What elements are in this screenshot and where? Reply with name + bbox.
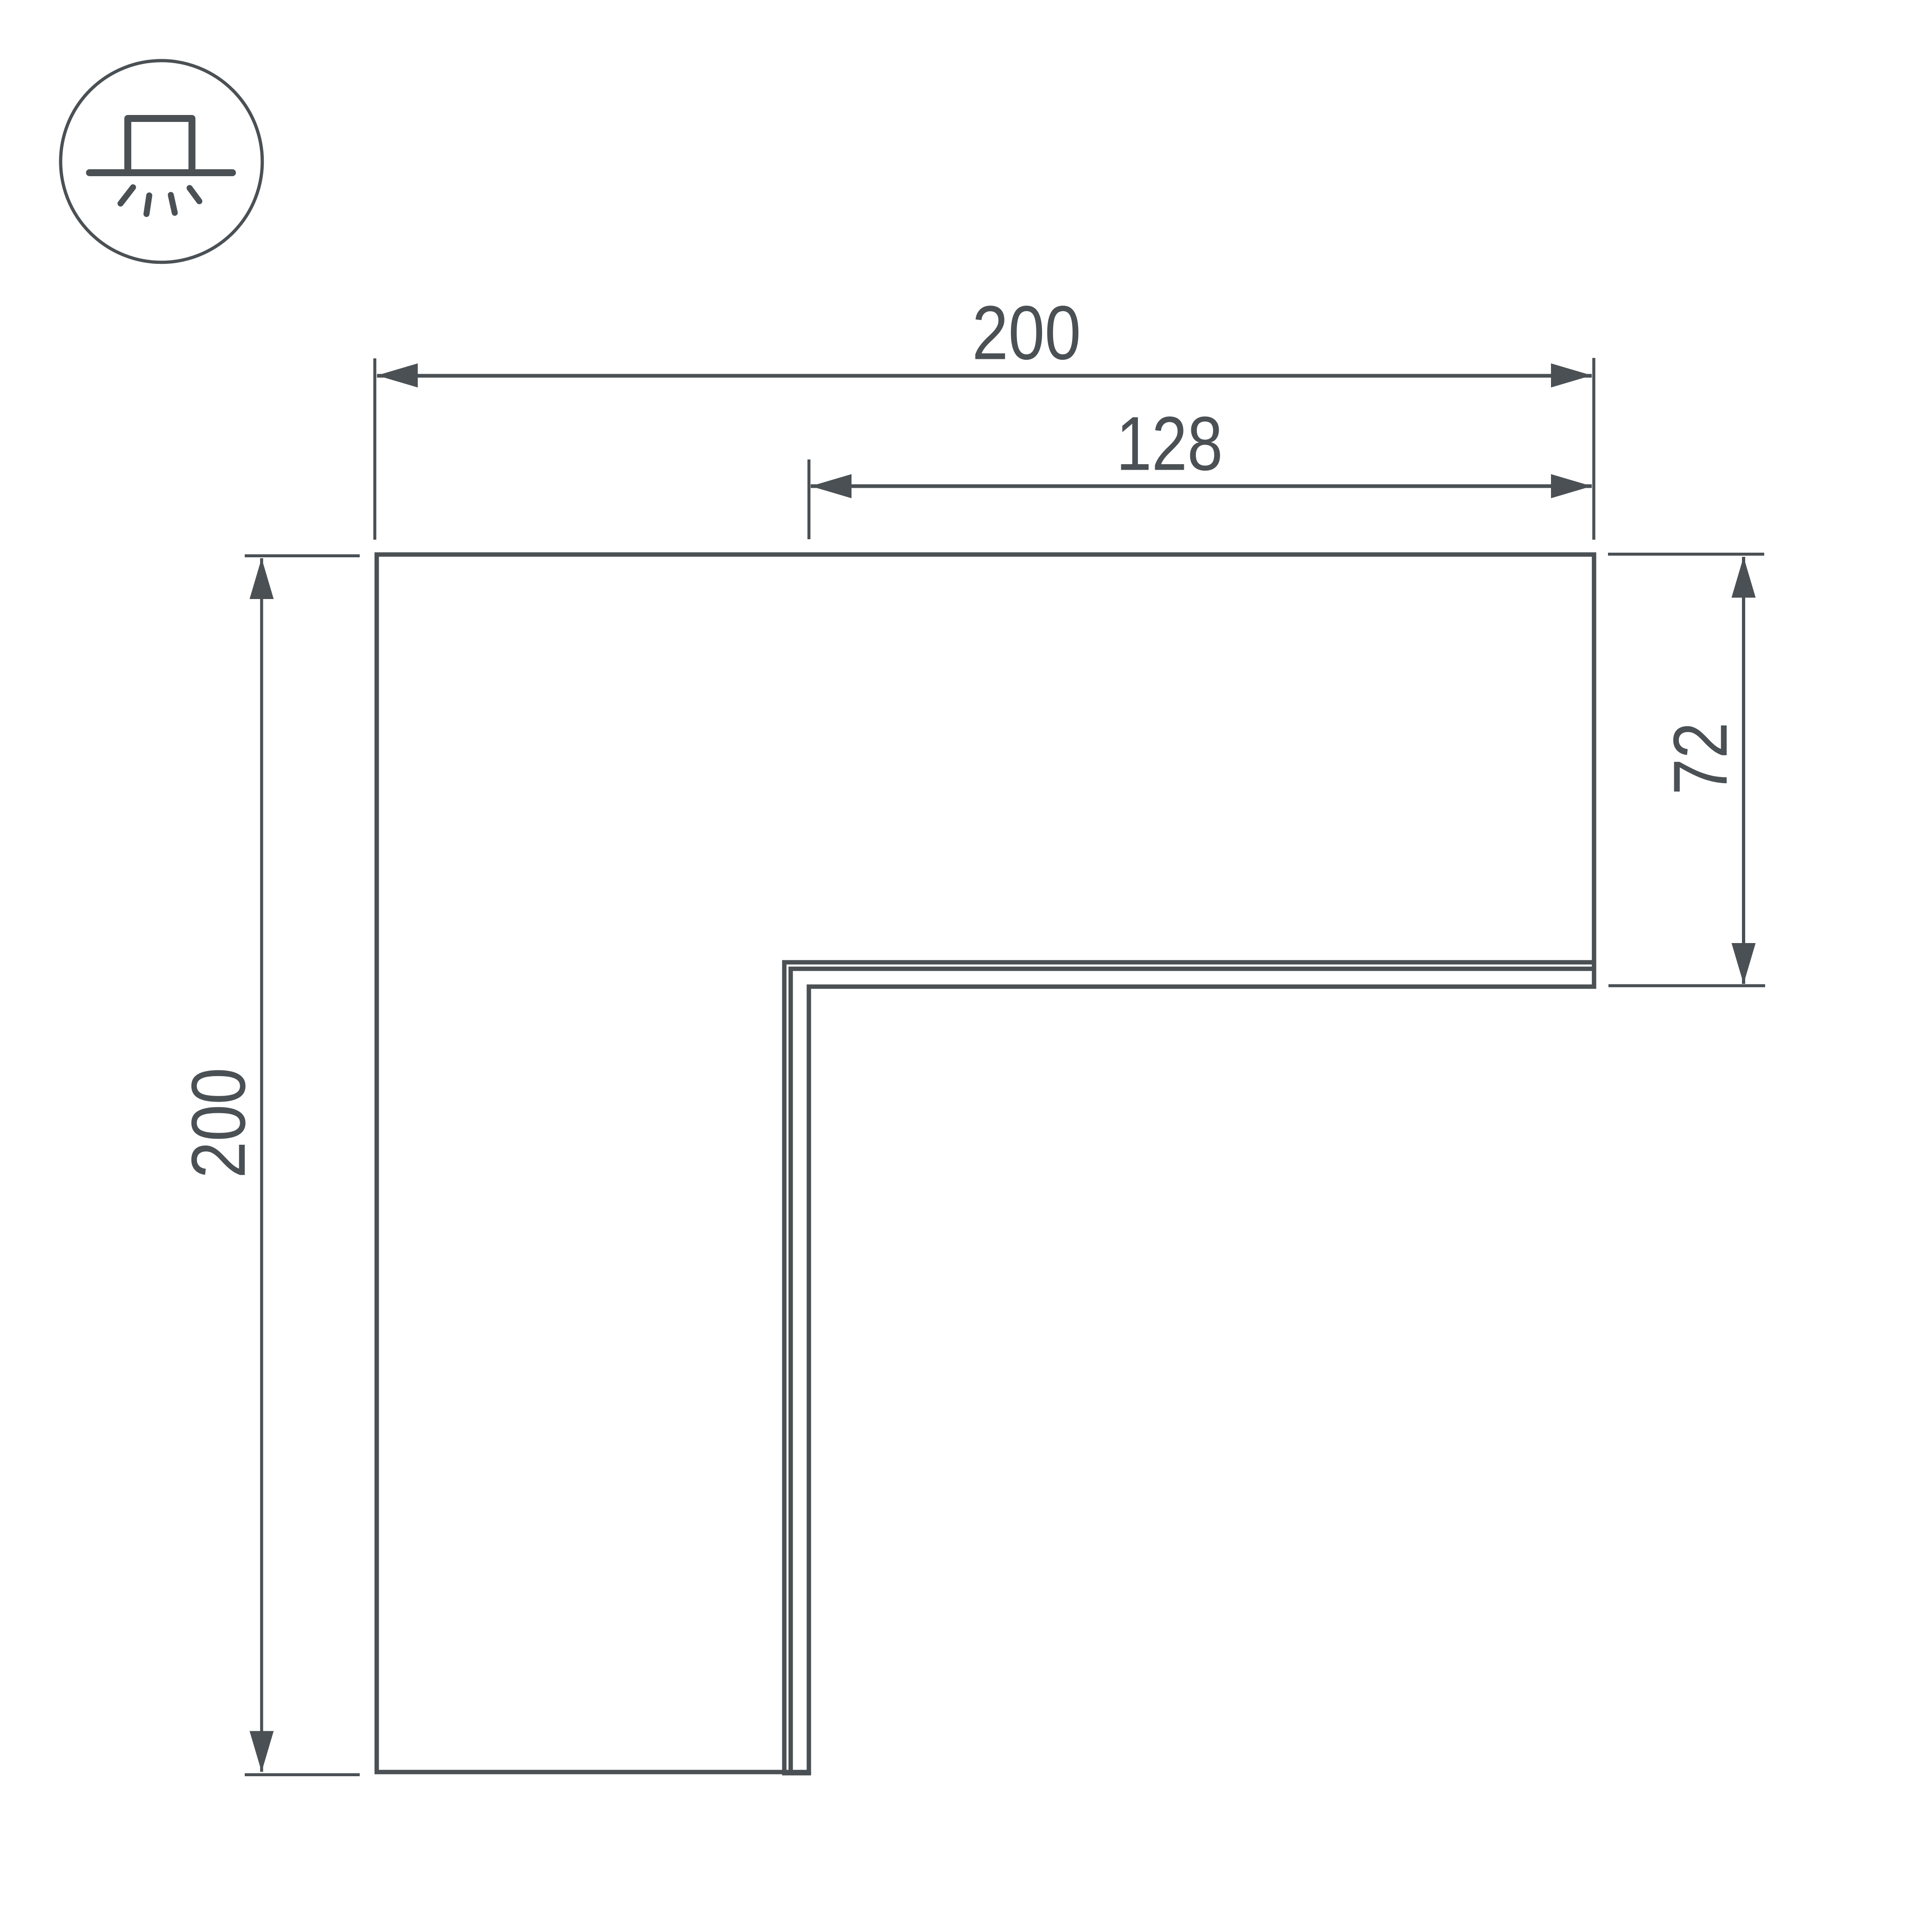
svg-text:200: 200 [972, 290, 1081, 376]
svg-text:72: 72 [1658, 722, 1743, 795]
svg-text:200: 200 [176, 1068, 261, 1179]
svg-text:128: 128 [1116, 401, 1223, 486]
